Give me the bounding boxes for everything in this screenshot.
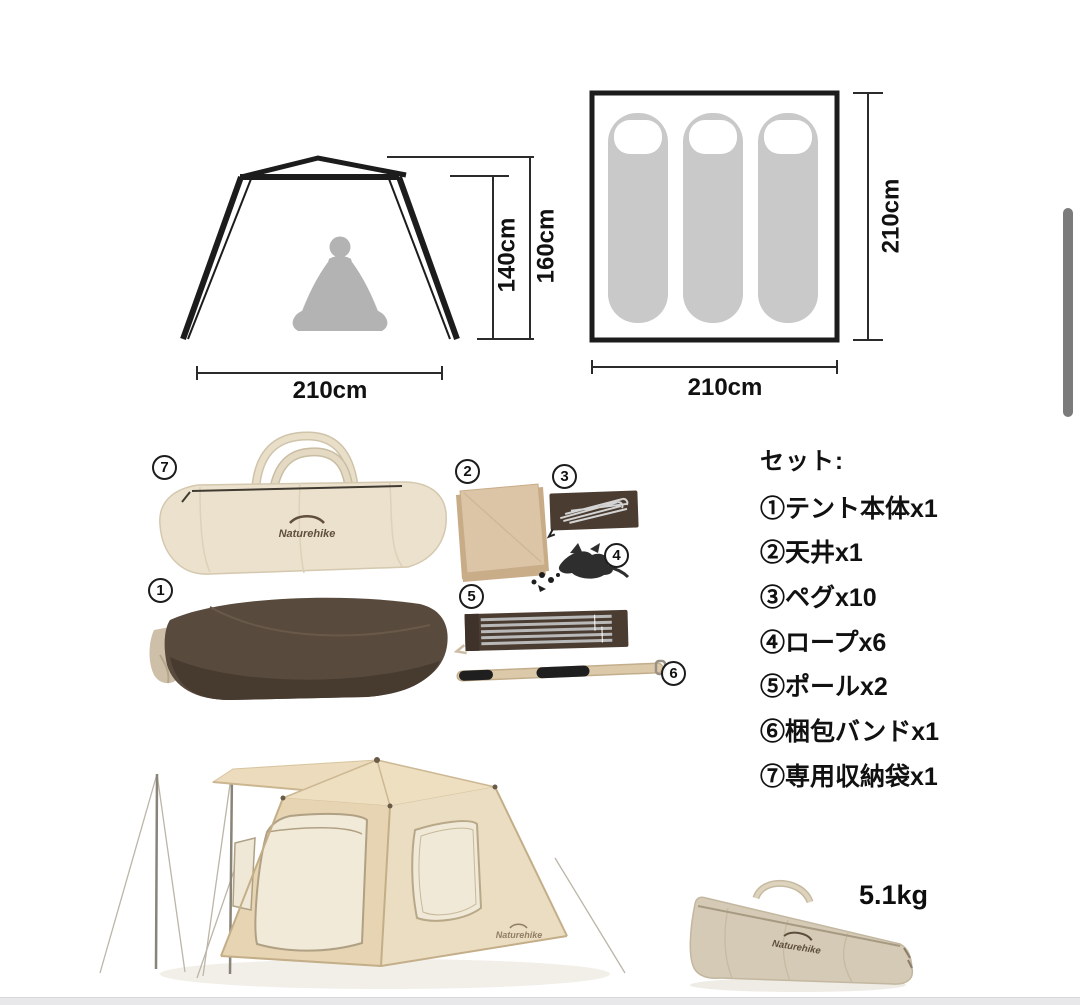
set-list-title: セット:: [760, 441, 1040, 476]
inner-height-label: 140cm: [494, 218, 521, 293]
set-item-pegs: ③ペグx10: [760, 569, 1040, 614]
width-label: 210cm: [688, 374, 763, 401]
badge-storage-bag: 7: [152, 455, 177, 480]
svg-text:Naturehike: Naturehike: [279, 528, 336, 540]
badge-pole: 5: [459, 584, 484, 609]
set-item-band: ⑥梱包バンドx1: [760, 703, 1040, 748]
weight-label: 5.1kg: [859, 880, 928, 911]
pole-photo: [456, 610, 629, 653]
badge-rope: 4: [604, 543, 629, 568]
depth-label: 210cm: [878, 179, 905, 254]
tent-door: [255, 814, 367, 951]
badge-band: 6: [661, 661, 686, 686]
tent-body-photo: [150, 598, 448, 700]
badge-tent-body: 1: [148, 578, 173, 603]
svg-text:Naturehike: Naturehike: [496, 930, 543, 940]
tent-floor-plan-diagram: 210cm 210cm: [580, 80, 920, 410]
badge-pegs: 3: [552, 464, 577, 489]
ceiling-fabric-photo: [456, 484, 560, 592]
pegs-photo: [547, 490, 638, 536]
meditating-person-silhouette: [293, 237, 388, 332]
scrollbar-thumb[interactable]: [1063, 208, 1073, 417]
outer-height-label: 160cm: [533, 209, 560, 284]
product-image: 140cm 160cm 210cm 210cm 210cm: [0, 0, 1080, 1005]
bottom-bar: [0, 997, 1080, 1005]
awning-pole-left: [156, 774, 157, 969]
set-contents-list: セット: ①テント本体x1 ②天井x1 ③ペグx10 ④ロープx6 ⑤ポールx2…: [760, 441, 1040, 793]
set-item-tent-body: ①テント本体x1: [760, 480, 1040, 525]
tent-side-window: [412, 821, 481, 921]
set-item-storage-bag: ⑦専用収納袋x1: [760, 748, 1040, 793]
storage-bag-photo: Naturehike: [160, 436, 446, 574]
width-label: 210cm: [293, 377, 368, 400]
band-photo: [462, 661, 665, 676]
set-item-rope: ④ロープx6: [760, 614, 1040, 659]
tent-side-view-diagram: 140cm 160cm 210cm: [140, 130, 560, 400]
set-item-pole: ⑤ポールx2: [760, 659, 1040, 704]
assembled-tent-photo: Naturehike: [85, 748, 630, 1000]
sleeping-bag-icons: [608, 113, 818, 323]
set-item-ceiling: ②天井x1: [760, 525, 1040, 570]
badge-ceiling: 2: [455, 459, 480, 484]
